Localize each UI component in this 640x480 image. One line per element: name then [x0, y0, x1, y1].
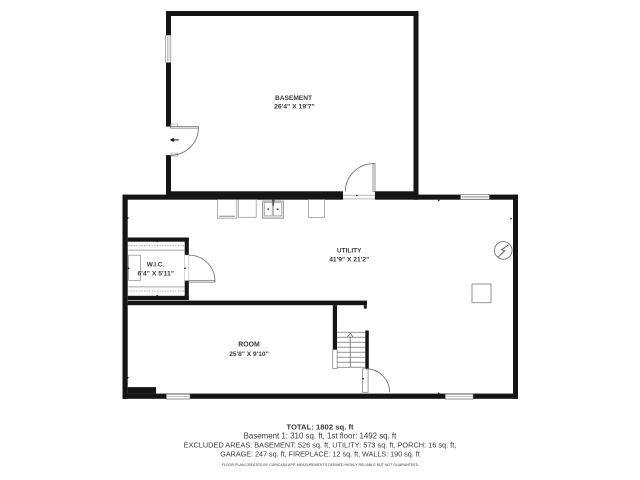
svg-text:GARAGE: 247 sq. ft, FIREPLACE:: GARAGE: 247 sq. ft, FIREPLACE: 12 sq. ft… — [220, 449, 419, 458]
svg-text:UTILITY: UTILITY — [337, 248, 362, 255]
svg-text:Basement 1: 310 sq. ft, 1st fl: Basement 1: 310 sq. ft, 1st floor: 1492 … — [244, 432, 397, 441]
svg-text:41'9" X 21'2": 41'9" X 21'2" — [329, 257, 369, 264]
svg-text:TOTAL: 1802 sq. ft: TOTAL: 1802 sq. ft — [286, 423, 354, 432]
svg-text:ROOM: ROOM — [238, 342, 260, 349]
svg-text:25'8" X 9'10": 25'8" X 9'10" — [229, 351, 268, 358]
svg-text:EXCLUDED AREAS: BASEMENT: 526: EXCLUDED AREAS: BASEMENT: 526 sq. ft, UT… — [184, 441, 457, 450]
svg-text:26'4" X 19'7": 26'4" X 19'7" — [274, 103, 315, 110]
svg-text:6'4" X 5'11": 6'4" X 5'11" — [138, 270, 175, 277]
svg-text:FLOOR PLAN CREATED BY CUBICASA: FLOOR PLAN CREATED BY CUBICASA APP. MEAS… — [222, 463, 419, 467]
svg-text:BASEMENT: BASEMENT — [275, 95, 312, 102]
svg-text:W.I.C.: W.I.C. — [147, 261, 165, 268]
